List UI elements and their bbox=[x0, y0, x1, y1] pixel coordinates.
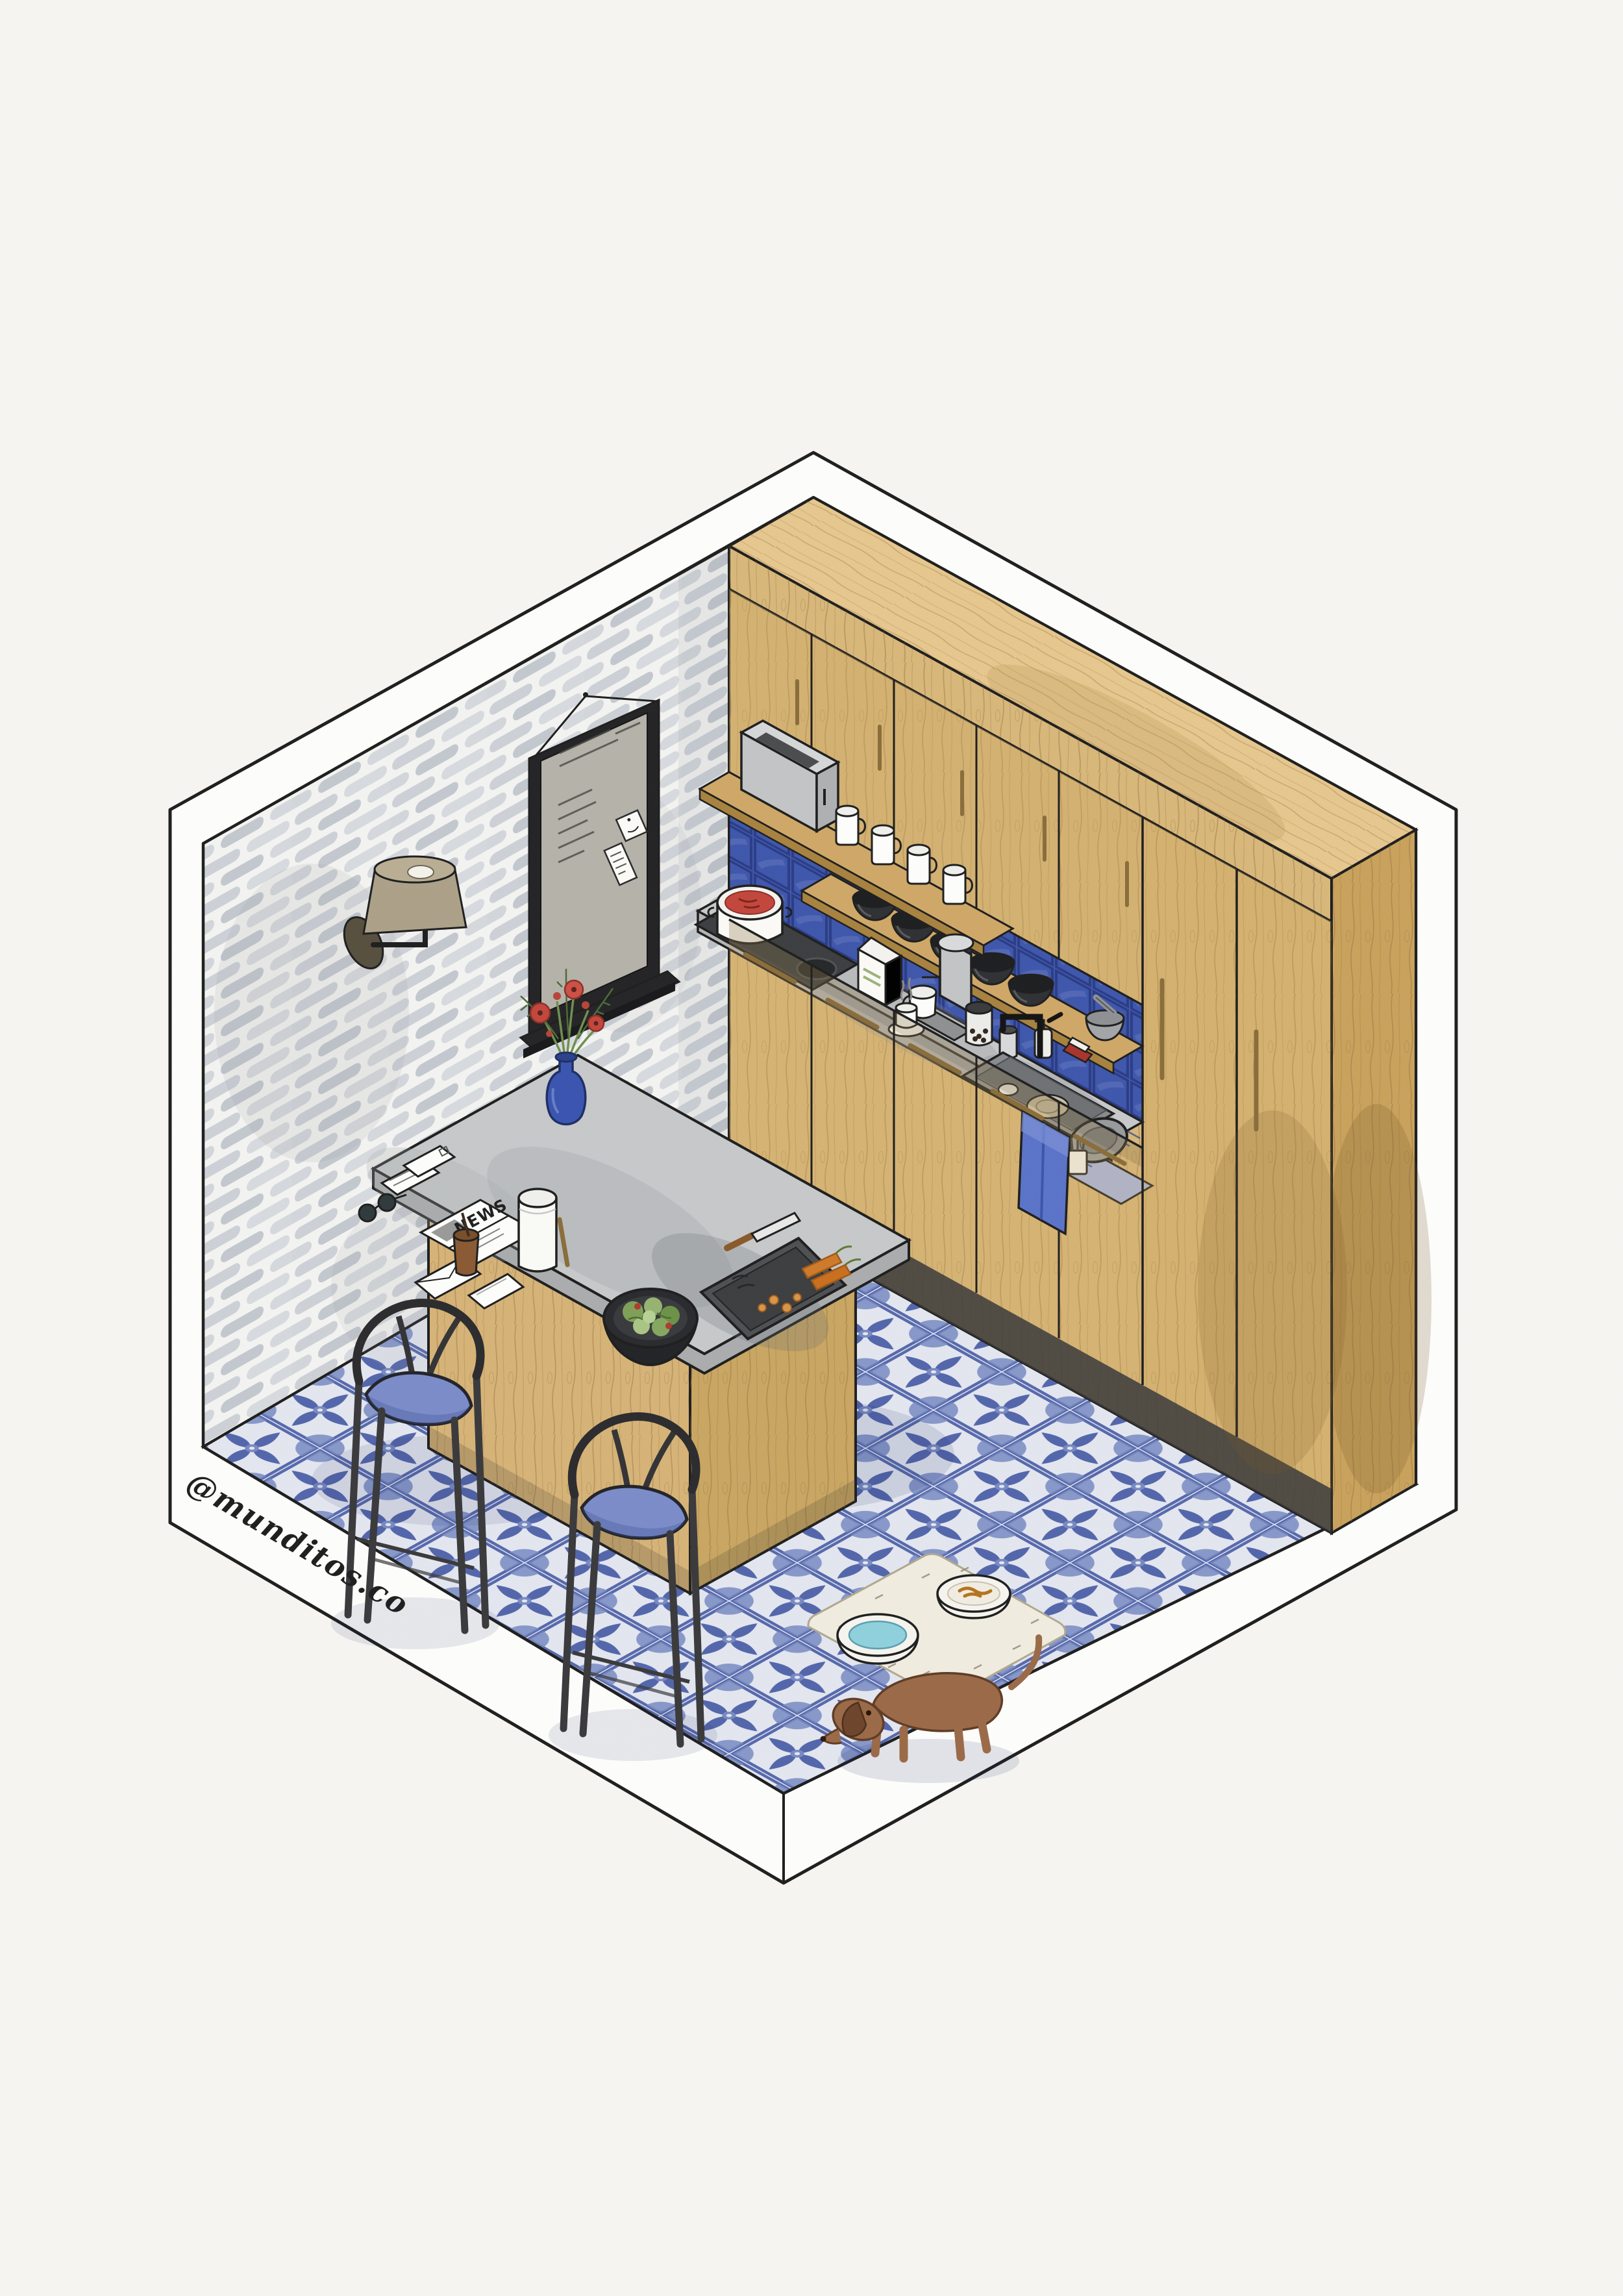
sconce-bulb bbox=[408, 866, 434, 879]
kitchen-illustration: NEWS bbox=[0, 0, 1623, 2296]
pantry-cabinets bbox=[1143, 817, 1347, 1533]
water-bowl bbox=[837, 1614, 918, 1664]
artwork-page: NEWS bbox=[0, 0, 1623, 2296]
food-bowl bbox=[937, 1575, 1010, 1618]
